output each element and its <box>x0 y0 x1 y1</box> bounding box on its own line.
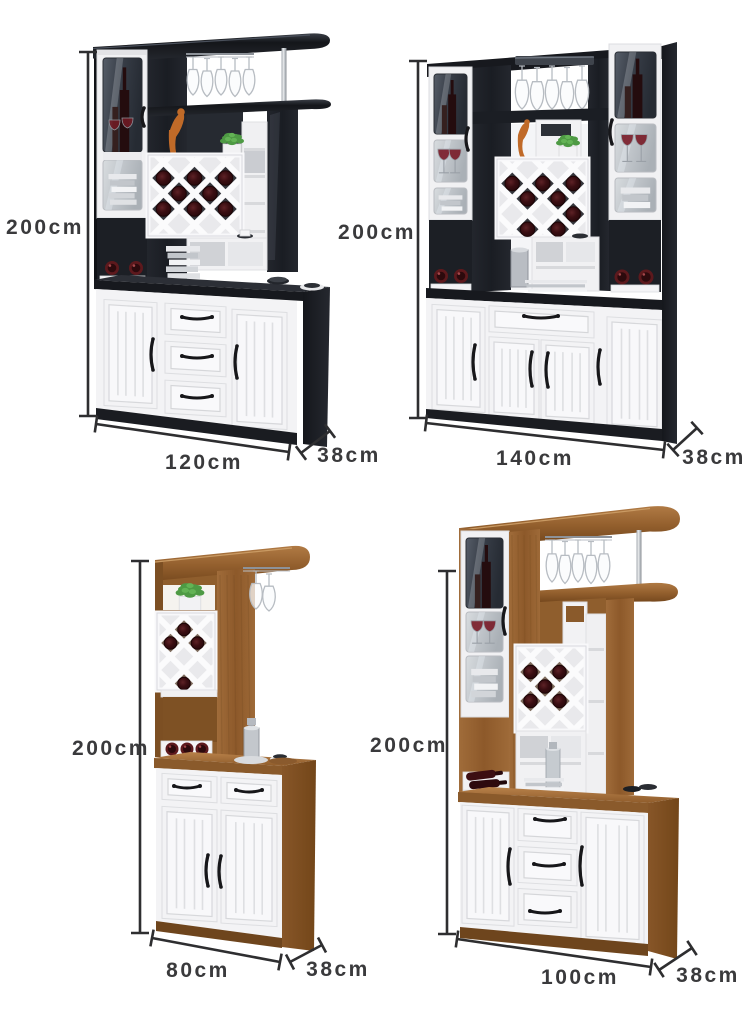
svg-text:100cm: 100cm <box>541 966 619 989</box>
svg-text:38cm: 38cm <box>306 958 370 981</box>
svg-text:120cm: 120cm <box>165 451 243 474</box>
svg-text:200cm: 200cm <box>338 221 416 244</box>
svg-text:200cm: 200cm <box>370 734 448 757</box>
svg-text:38cm: 38cm <box>317 444 381 467</box>
svg-text:140cm: 140cm <box>496 447 574 470</box>
svg-text:38cm: 38cm <box>682 446 746 469</box>
svg-text:200cm: 200cm <box>6 216 84 239</box>
svg-text:200cm: 200cm <box>72 737 150 760</box>
svg-text:80cm: 80cm <box>166 959 230 982</box>
svg-text:38cm: 38cm <box>676 964 740 987</box>
